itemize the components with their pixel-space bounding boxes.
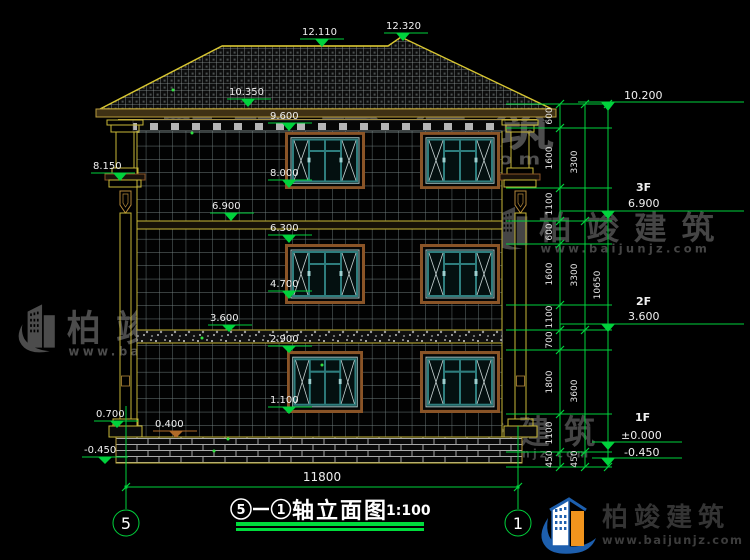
roof-eave-cornice	[96, 109, 556, 131]
svg-text:9.600: 9.600	[270, 111, 299, 122]
svg-text:1600: 1600	[545, 262, 555, 285]
svg-text:3.600: 3.600	[628, 310, 660, 323]
svg-text:8.000: 8.000	[270, 168, 299, 179]
svg-text:±0.000: ±0.000	[621, 429, 662, 442]
window-1f-left	[288, 353, 361, 412]
svg-text:6.300: 6.300	[270, 223, 299, 234]
roof	[100, 37, 552, 109]
title-scale: 1:100	[386, 503, 431, 519]
floor-band-3f	[137, 221, 502, 229]
axis-bubble-right: 1	[505, 510, 531, 536]
level-marker-12110: 12.110	[300, 27, 344, 47]
svg-text:-0.450: -0.450	[624, 446, 659, 459]
title-underline-1	[236, 522, 424, 526]
title-underline-2	[236, 528, 424, 531]
cad-elevation-canvas: 柏竣建筑 www.baijunjz.com	[0, 0, 750, 560]
level-marker-right-2f: 2F 3.600	[560, 295, 744, 332]
svg-text:2.900: 2.900	[270, 334, 299, 345]
title-text: 轴立面图	[292, 498, 388, 524]
svg-text:-0.450: -0.450	[84, 445, 116, 456]
right-dim-total-label: 10650	[593, 270, 603, 299]
brand-logo-icon	[541, 499, 596, 554]
belt-band-2f	[137, 330, 502, 343]
svg-text:700: 700	[545, 331, 555, 348]
title-axis-start: 5	[236, 503, 245, 518]
svg-text:1100: 1100	[545, 305, 555, 328]
svg-text:3300: 3300	[570, 150, 580, 173]
dentil-band	[133, 120, 505, 131]
window-3f-left	[287, 133, 364, 187]
svg-text:600: 600	[545, 107, 555, 124]
level-marker-right-10200: 10.200	[578, 89, 744, 111]
brand-logo-name: 柏竣建筑	[602, 502, 730, 533]
svg-text:1F: 1F	[635, 411, 650, 424]
svg-text:2F: 2F	[636, 295, 651, 308]
svg-text:1800: 1800	[545, 370, 555, 393]
svg-text:0.700: 0.700	[96, 409, 125, 420]
svg-text:10.350: 10.350	[229, 87, 264, 98]
svg-text:1.100: 1.100	[270, 395, 299, 406]
svg-text:10.200: 10.200	[624, 89, 663, 102]
svg-text:4.700: 4.700	[270, 279, 299, 290]
svg-text:12.110: 12.110	[302, 27, 337, 38]
svg-text:5: 5	[121, 514, 131, 533]
brand-logo-url: www.baijunjz.com	[602, 533, 743, 547]
window-2f-right	[422, 246, 499, 303]
svg-text:450: 450	[545, 450, 555, 467]
svg-text:6.900: 6.900	[212, 201, 241, 212]
plinth-brick-base	[116, 437, 522, 463]
svg-text:3F: 3F	[636, 181, 651, 194]
svg-text:1600: 1600	[545, 146, 555, 169]
window-1f-right	[422, 353, 499, 412]
svg-text:1: 1	[513, 514, 523, 533]
svg-text:3300: 3300	[570, 263, 580, 286]
svg-text:1100: 1100	[545, 192, 555, 215]
svg-text:3600: 3600	[570, 379, 580, 402]
brand-logo: 柏竣建筑 www.baijunjz.com	[541, 499, 743, 554]
elevation-drawing-svg: 柏竣建筑 www.baijunjz.com	[0, 0, 750, 560]
level-marker-12320: 12.320	[384, 21, 428, 41]
svg-text:1100: 1100	[545, 421, 555, 444]
bottom-dim-label: 11800	[303, 470, 341, 484]
svg-text:3.600: 3.600	[210, 313, 239, 324]
svg-text:600: 600	[545, 223, 555, 240]
svg-text:6.900: 6.900	[628, 197, 660, 210]
window-2f-left	[287, 246, 364, 303]
svg-text:0.400: 0.400	[155, 419, 184, 430]
window-3f-right	[422, 133, 499, 187]
svg-text:8.150: 8.150	[93, 161, 122, 172]
svg-text:12.320: 12.320	[386, 21, 421, 32]
axis-bubble-left: 5	[113, 510, 139, 536]
title-axis-end: 1	[276, 503, 285, 518]
svg-text:450: 450	[570, 450, 580, 467]
drawing-title: 5 1 轴立面图 1:100	[231, 498, 431, 531]
